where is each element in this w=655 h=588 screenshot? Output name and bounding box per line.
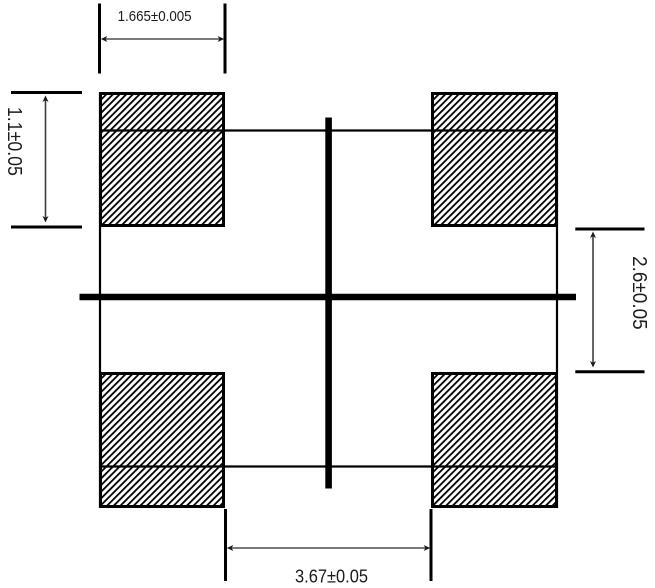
svg-text:2.6±0.05: 2.6±0.05 [628,256,650,330]
svg-text:3.67±0.05: 3.67±0.05 [295,567,368,587]
svg-text:1.665±0.005: 1.665±0.005 [118,8,192,25]
svg-text:1.1±0.05: 1.1±0.05 [3,107,25,176]
